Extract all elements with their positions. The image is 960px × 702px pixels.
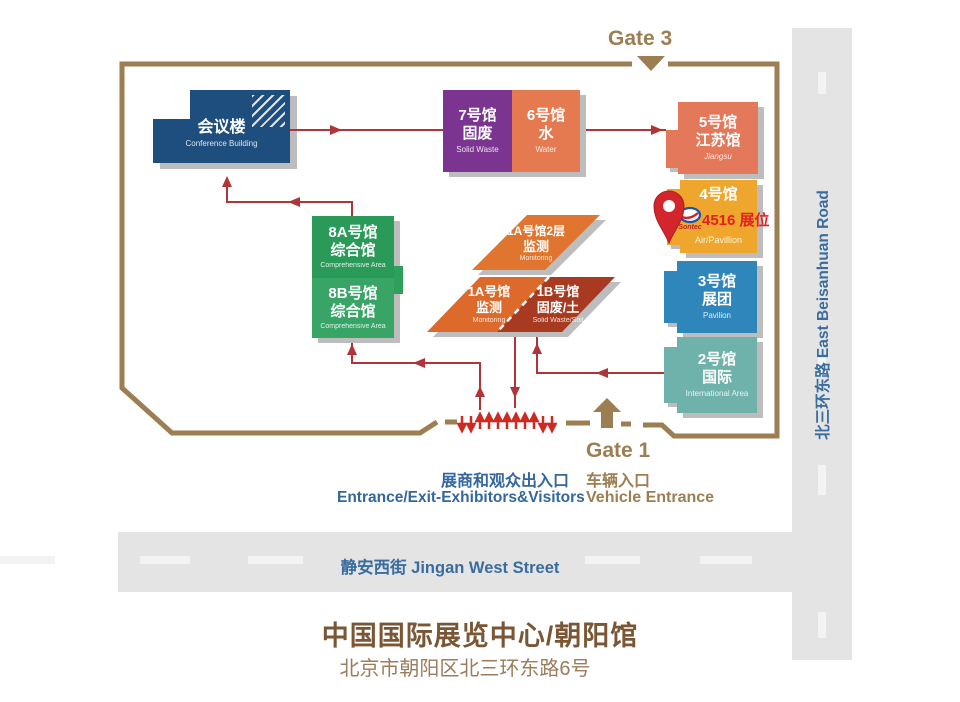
hall-3-tab	[664, 271, 678, 323]
hall-2: 2号馆 国际 International Area	[677, 337, 757, 413]
hall-theme: 江苏馆	[695, 132, 740, 150]
map-address: 北京市朝阳区北三环东路6号	[180, 652, 750, 681]
hall-name-en: Monitoring	[478, 255, 594, 264]
hall-name-en: Conference Building	[185, 139, 257, 149]
map-title: 中国国际展览中心/朝阳馆	[180, 614, 780, 653]
hall-6: 6号馆 水 Water	[512, 90, 580, 172]
vehicle-label-en: Vehicle Entrance	[586, 489, 714, 507]
hall-name-en: Air/Pavillion	[695, 235, 742, 246]
entrance-arrows-icon	[459, 414, 556, 431]
hall-name-en: Water	[535, 145, 556, 155]
hall-name: 会议楼	[197, 118, 245, 137]
gate1-arrow-icon	[593, 398, 621, 428]
hall-8-group: 8A号馆 综合馆 Comprehensive Area 8B号馆 综合馆 Com…	[312, 216, 394, 338]
gate1-label: Gate 1	[586, 439, 650, 463]
exhibition-map-root: { "palette": { "border_tan": "#9c7e52", …	[0, 0, 960, 702]
hall-theme: 展团	[702, 291, 732, 309]
hall-conference-label: 会议楼 Conference Building	[153, 108, 290, 158]
hall-name: 2号馆	[698, 351, 736, 369]
hall-name-en: Solid Waste/Soil	[502, 317, 614, 326]
hall-name: 4号馆	[699, 186, 737, 204]
hall-name: 8A号馆	[328, 224, 377, 242]
booth-pin-icon	[650, 189, 688, 247]
hall-7: 7号馆 固废 Solid Waste	[443, 90, 512, 172]
hall-theme: 监测	[478, 239, 594, 255]
route-lines	[227, 130, 666, 410]
entrance-label-cn: 展商和观众出入口	[441, 467, 569, 491]
hall-5: 5号馆 江苏馆 Jiangsu	[678, 102, 758, 174]
hall-8-tab	[394, 266, 403, 294]
hall-theme: 综合馆	[330, 242, 375, 260]
entrance-label-en: Entrance/Exit-Exhibitors&Visitors	[337, 489, 585, 507]
hall-name-en: Pavilion	[703, 311, 731, 321]
hall-name-en: Comprehensive Area	[320, 323, 385, 331]
hall-name: 3号馆	[698, 273, 736, 291]
hall-3: 3号馆 展团 Pavilion	[677, 261, 757, 333]
vehicle-label-cn: 车辆入口	[586, 467, 650, 491]
hall-8a: 8A号馆 综合馆 Comprehensive Area	[312, 216, 394, 278]
hall-name: 1A号馆2层	[478, 224, 594, 239]
hall-name-en: International Area	[686, 389, 749, 399]
hall-name: 8B号馆	[328, 285, 377, 303]
gate3-label: Gate 3	[608, 27, 672, 51]
hall-name-en: Solid Waste	[456, 145, 498, 155]
booth-label: 4516 展位	[702, 209, 770, 230]
hall-theme: 综合馆	[330, 303, 375, 321]
hall-2-tab	[664, 347, 678, 403]
hall-theme: 固废/土	[502, 300, 614, 316]
hall-1b-label: 1B号馆 固废/土 Solid Waste/Soil	[502, 284, 614, 325]
hall-name-en: Comprehensive Area	[320, 262, 385, 270]
hall-1a-upper-label: 1A号馆2层 监测 Monitoring	[478, 224, 594, 264]
gate3-arrow-icon	[637, 56, 665, 71]
hall-name: 1B号馆	[502, 284, 614, 300]
hall-theme: 国际	[702, 369, 732, 387]
hall-name: 6号馆	[527, 107, 565, 125]
hall-theme: 水	[538, 125, 553, 143]
hall-name: 7号馆	[458, 107, 496, 125]
hall-7-6-group: 7号馆 固废 Solid Waste 6号馆 水 Water	[443, 90, 580, 172]
hall-8b: 8B号馆 综合馆 Comprehensive Area	[312, 278, 394, 338]
hall-theme: 固废	[462, 125, 492, 143]
hall-name: 5号馆	[699, 114, 737, 132]
hall-name-en: Jiangsu	[704, 152, 732, 162]
